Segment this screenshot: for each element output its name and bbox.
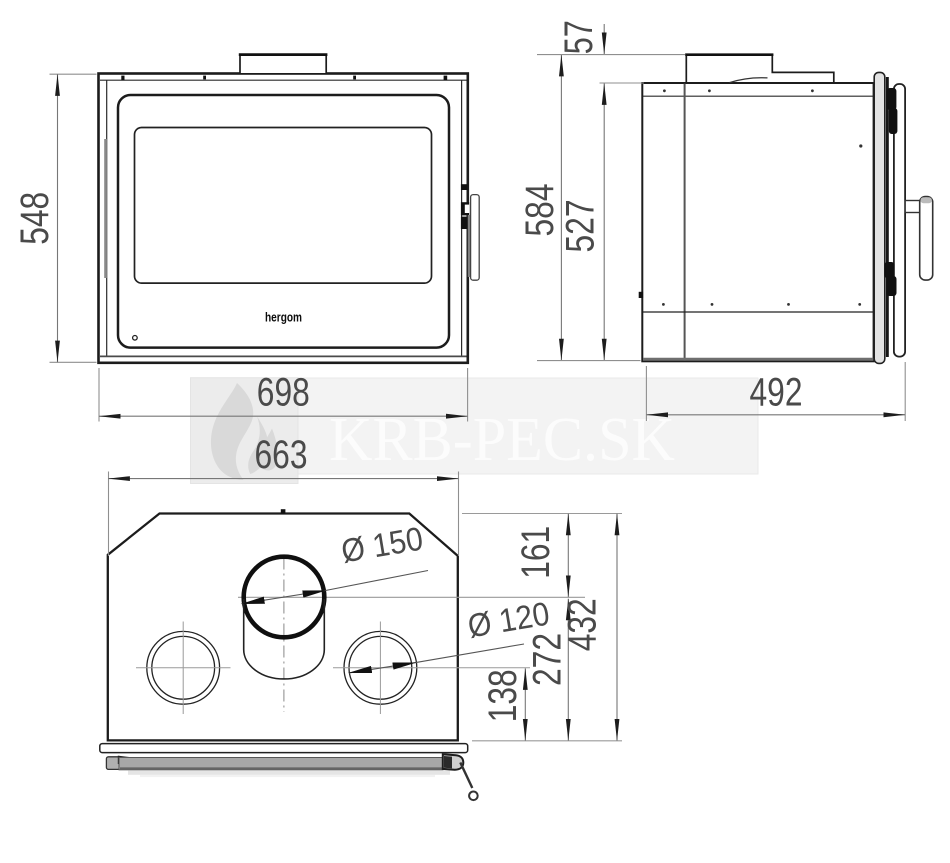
svg-text:698: 698 (257, 371, 310, 415)
svg-text:57: 57 (557, 20, 601, 54)
svg-text:138: 138 (481, 669, 525, 722)
svg-text:548: 548 (13, 192, 57, 245)
svg-text:hergom: hergom (265, 310, 302, 324)
svg-text:527: 527 (559, 200, 603, 253)
svg-text:492: 492 (750, 371, 803, 415)
svg-text:663: 663 (255, 433, 308, 477)
svg-text:432: 432 (560, 598, 604, 651)
svg-text:584: 584 (518, 184, 562, 237)
svg-text:161: 161 (514, 526, 558, 579)
